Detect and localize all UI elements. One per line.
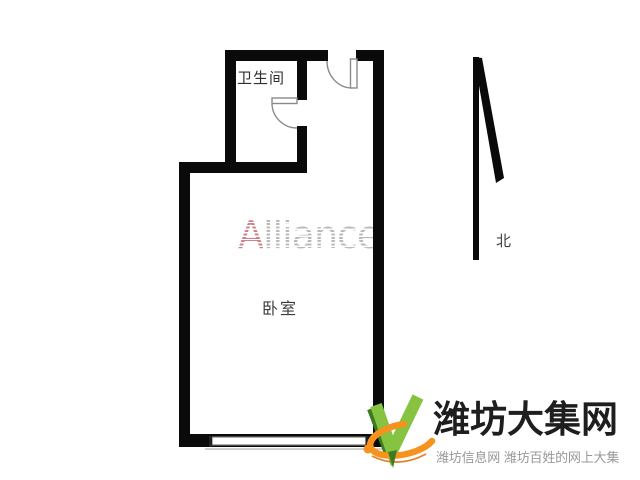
watermark-lead-letter: A (238, 213, 263, 257)
wall-top-left (225, 50, 328, 61)
site-logo-title: 潍坊大集网 (433, 401, 618, 440)
window-tick-left (209, 436, 212, 447)
swoosh-left-blob (364, 445, 373, 454)
window-frame (212, 437, 366, 445)
logo-swoosh-icon (364, 424, 433, 462)
alliance-watermark: Alliance (238, 216, 379, 254)
site-logo-subtitle: 潍坊信息网 潍坊百姓的网上大集 (436, 447, 619, 466)
floor-plan-image: Alliance (0, 0, 640, 480)
wall-bathroom-right-upper (297, 61, 307, 100)
wall-top-right (356, 50, 384, 61)
wall-left (179, 162, 190, 447)
swoosh-ring (370, 424, 432, 456)
bathroom-door (272, 98, 297, 128)
swoosh-underline (372, 454, 426, 462)
bathroom-label: 卫生间 (237, 67, 285, 88)
wall-bottom (179, 434, 384, 447)
window (205, 436, 388, 450)
entry-door (327, 59, 357, 88)
window-tick-right (366, 436, 369, 447)
checkmark-tip (388, 450, 397, 468)
watermark-rest-letters: lliance (263, 213, 379, 257)
entry-door-leaf (351, 59, 358, 88)
bathroom-door-leaf (272, 98, 297, 104)
window-sill-line (205, 448, 388, 449)
wall-step (179, 162, 307, 173)
wall-bathroom-left (225, 50, 236, 173)
checkmark-shadow-stroke (370, 409, 388, 456)
bedroom-label: 卧室 (262, 295, 298, 319)
entry-door-arc (327, 61, 351, 88)
north-arrow-shaft (473, 57, 479, 260)
north-arrow-blade (474, 57, 504, 183)
bathroom-door-arc (272, 104, 297, 128)
wall-bathroom-right-lower (297, 126, 307, 173)
checkmark-main-stroke (376, 397, 418, 451)
north-label: 北 (496, 230, 511, 251)
logo-checkmark-icon (370, 397, 418, 456)
